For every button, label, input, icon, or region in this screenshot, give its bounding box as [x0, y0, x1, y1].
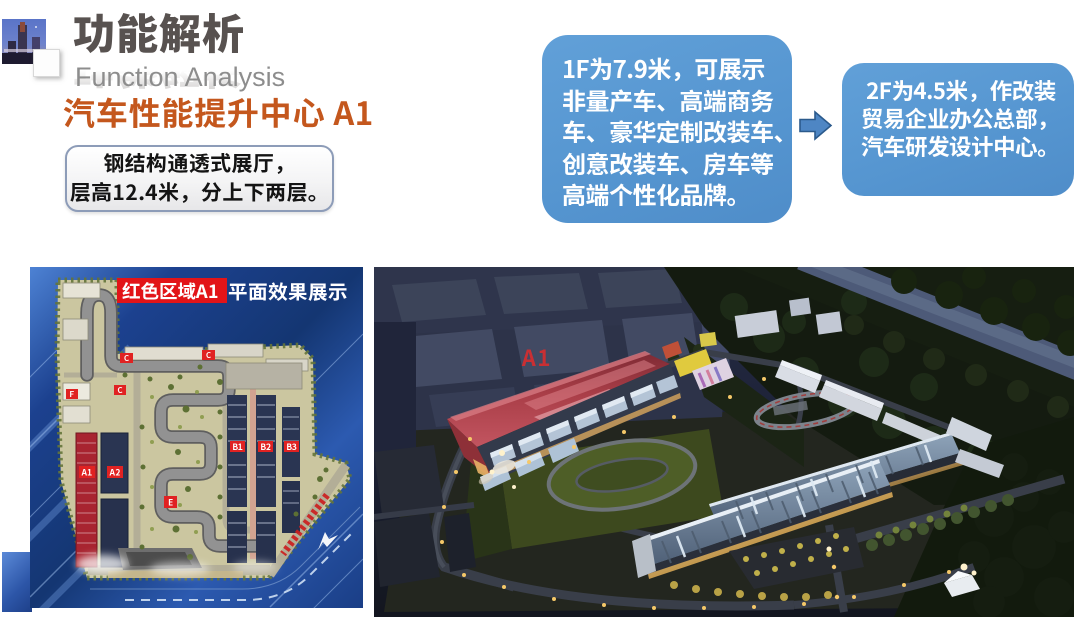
- svg-text:B2: B2: [260, 441, 271, 453]
- svg-text:B1: B1: [232, 441, 243, 453]
- svg-text:E: E: [168, 497, 173, 509]
- svg-text:C: C: [206, 350, 212, 361]
- svg-text:平面效果展示: 平面效果展示: [228, 276, 348, 305]
- svg-text:A1: A1: [521, 341, 551, 373]
- svg-text:红色区域A1: 红色区域A1: [122, 278, 219, 304]
- svg-text:A2: A2: [109, 467, 120, 479]
- svg-text:B3: B3: [286, 441, 297, 453]
- svg-text:A1: A1: [81, 467, 92, 479]
- svg-text:C: C: [124, 353, 130, 364]
- svg-text:C: C: [117, 385, 123, 396]
- svg-text:F: F: [70, 389, 75, 400]
